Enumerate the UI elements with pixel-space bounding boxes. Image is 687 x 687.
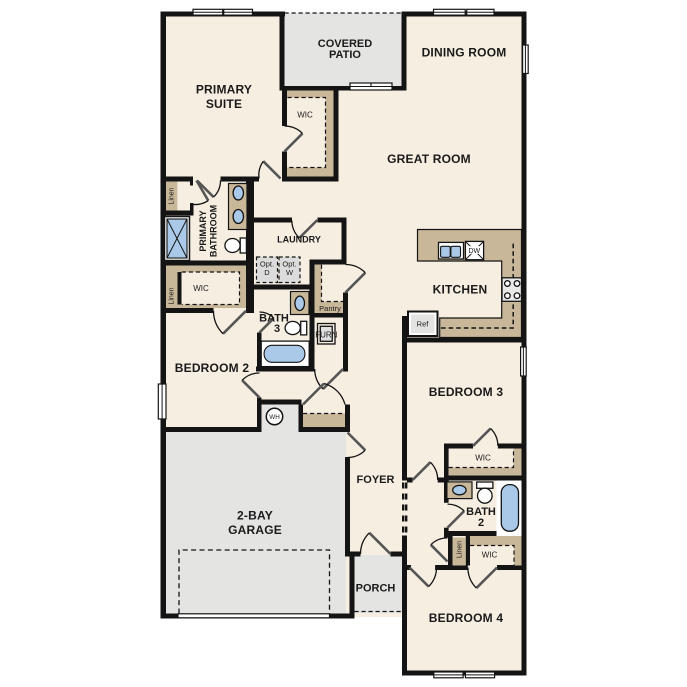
svg-text:2-BAY: 2-BAY	[237, 509, 273, 523]
svg-text:WIC: WIC	[297, 111, 313, 120]
svg-text:WIC: WIC	[475, 454, 491, 463]
svg-text:BEDROOM 3: BEDROOM 3	[429, 385, 504, 399]
svg-text:Linen: Linen	[169, 287, 176, 304]
svg-text:WH: WH	[269, 414, 280, 421]
svg-text:FOYER: FOYER	[357, 474, 395, 486]
svg-text:LAUNDRY: LAUNDRY	[277, 235, 321, 245]
svg-text:Linen: Linen	[169, 187, 176, 204]
svg-text:DINING ROOM: DINING ROOM	[422, 46, 507, 60]
svg-text:BEDROOM 4: BEDROOM 4	[429, 611, 504, 625]
svg-text:PATIO: PATIO	[329, 49, 361, 61]
svg-text:FURN: FURN	[315, 331, 337, 340]
svg-text:BATHROOM: BATHROOM	[209, 205, 219, 257]
svg-text:DW: DW	[468, 248, 480, 255]
svg-text:PRIMARY: PRIMARY	[198, 210, 208, 251]
svg-text:GREAT ROOM: GREAT ROOM	[387, 152, 471, 166]
svg-text:3: 3	[274, 323, 280, 335]
svg-text:W: W	[286, 268, 294, 277]
svg-text:D: D	[264, 268, 270, 277]
svg-text:Linen: Linen	[457, 541, 464, 558]
svg-text:PRIMARY: PRIMARY	[196, 83, 252, 97]
svg-text:WIC: WIC	[482, 551, 498, 560]
svg-text:SUITE: SUITE	[206, 97, 242, 111]
svg-text:BEDROOM 2: BEDROOM 2	[175, 361, 250, 375]
svg-text:2: 2	[478, 517, 484, 529]
svg-text:PORCH: PORCH	[356, 583, 396, 595]
svg-text:Ref: Ref	[417, 320, 430, 329]
svg-text:Pantry: Pantry	[319, 304, 341, 313]
svg-text:GARAGE: GARAGE	[228, 523, 282, 537]
svg-text:WIC: WIC	[193, 284, 209, 293]
svg-text:KITCHEN: KITCHEN	[433, 283, 488, 297]
